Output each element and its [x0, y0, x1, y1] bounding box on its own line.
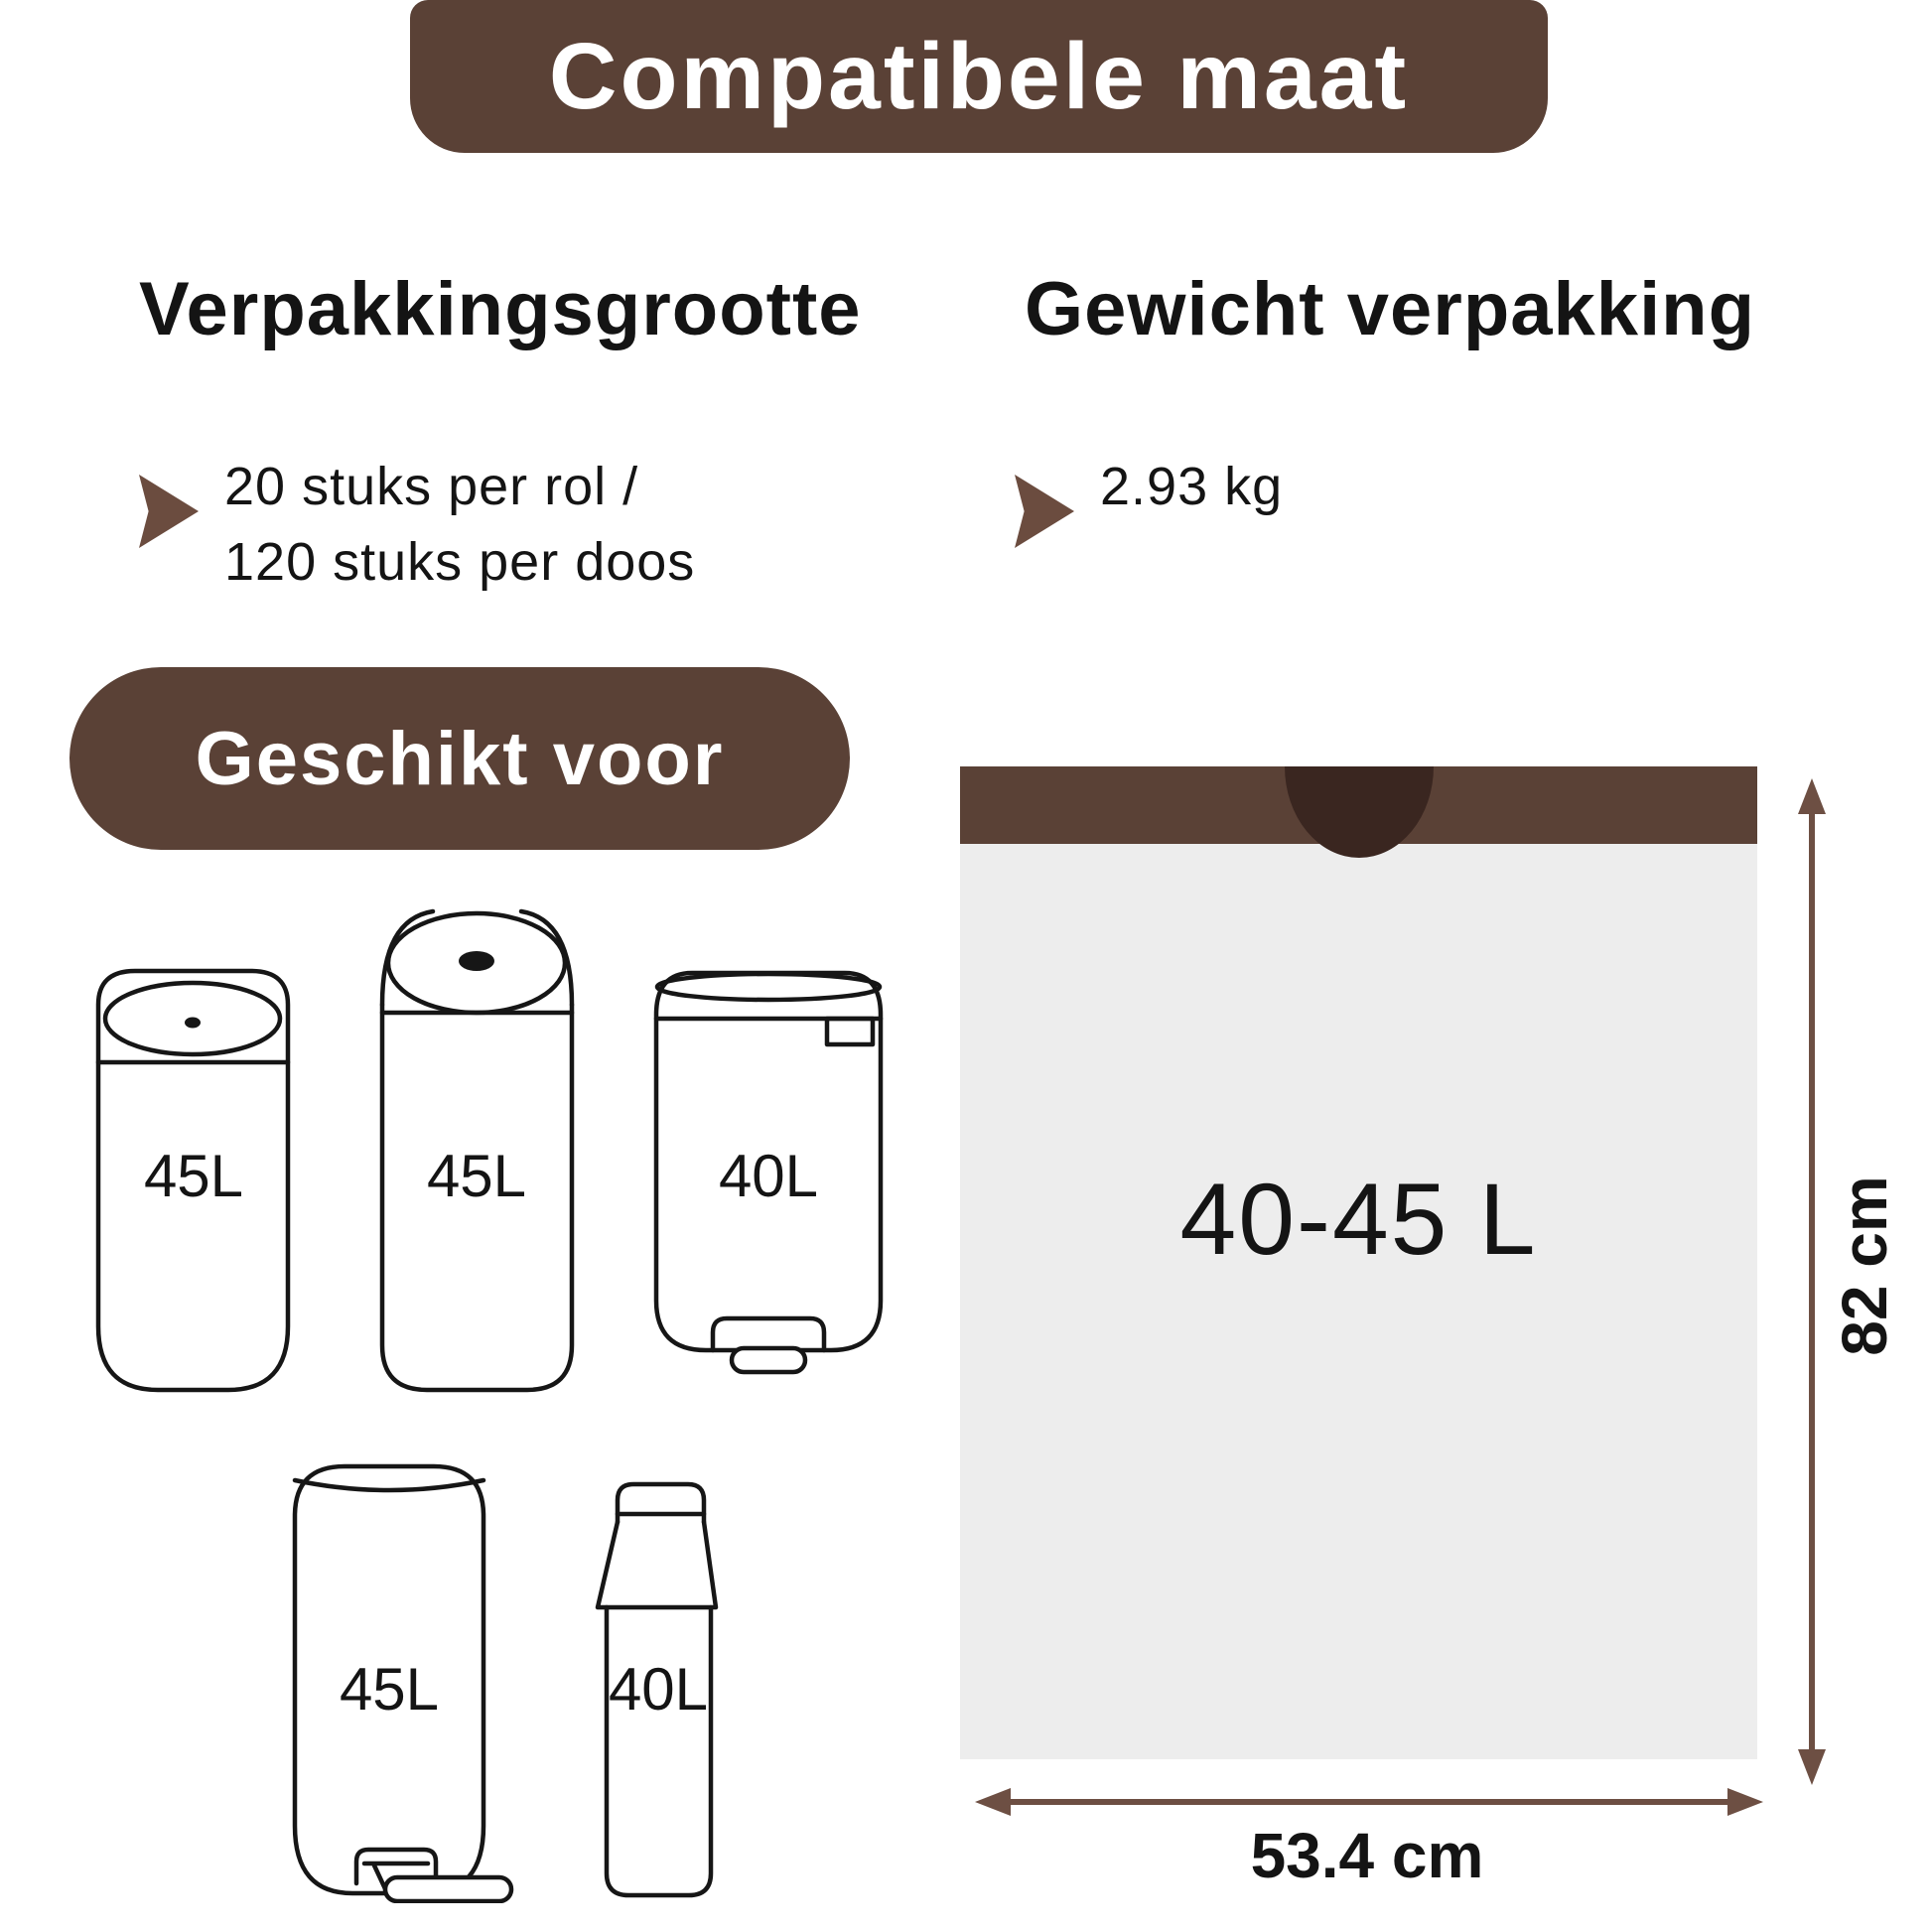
- arrowhead-left-icon: [975, 1788, 1011, 1816]
- arrow-bullet-icon: [139, 475, 199, 548]
- package-size-heading: Verpakkingsgrootte: [139, 266, 862, 352]
- page-title: Compatibele maat: [549, 23, 1409, 131]
- arrowhead-right-icon: [1727, 1788, 1763, 1816]
- bag-width-label: 53.4 cm: [1169, 1819, 1566, 1892]
- height-arrow-line: [1809, 810, 1815, 1751]
- suitable-for-label: Geschikt voor: [196, 716, 725, 802]
- bag-body: [960, 844, 1757, 1759]
- package-weight-value: 2.93 kg: [1100, 449, 1283, 524]
- title-banner: Compatibele maat: [410, 0, 1548, 153]
- bin-capacity-label: 45L: [290, 1655, 488, 1724]
- bag-height-label: 82 cm: [1828, 1117, 1897, 1415]
- package-size-line1: 20 stuks per rol /: [224, 449, 695, 524]
- arrowhead-down-icon: [1798, 1749, 1826, 1785]
- package-size-text: 20 stuks per rol / 120 stuks per doos: [224, 449, 695, 600]
- package-size-line2: 120 stuks per doos: [224, 524, 695, 600]
- package-weight-heading: Gewicht verpakking: [1025, 266, 1755, 352]
- bin-capacity-label: 40L: [559, 1655, 758, 1724]
- bin-capacity-label: 45L: [94, 1142, 293, 1210]
- product-size-infographic: Compatibele maat Verpakkingsgrootte 20 s…: [0, 0, 1932, 1932]
- width-arrow-line: [1007, 1799, 1727, 1805]
- arrow-bullet-icon: [1015, 475, 1074, 548]
- suitable-for-pill: Geschikt voor: [69, 667, 850, 850]
- bin-capacity-label: 40L: [669, 1142, 868, 1210]
- bag-illustration: 40-45 L: [960, 766, 1757, 1759]
- bag-capacity-label: 40-45 L: [960, 1162, 1757, 1278]
- bin-capacity-label: 45L: [377, 1142, 576, 1210]
- arrowhead-up-icon: [1798, 778, 1826, 814]
